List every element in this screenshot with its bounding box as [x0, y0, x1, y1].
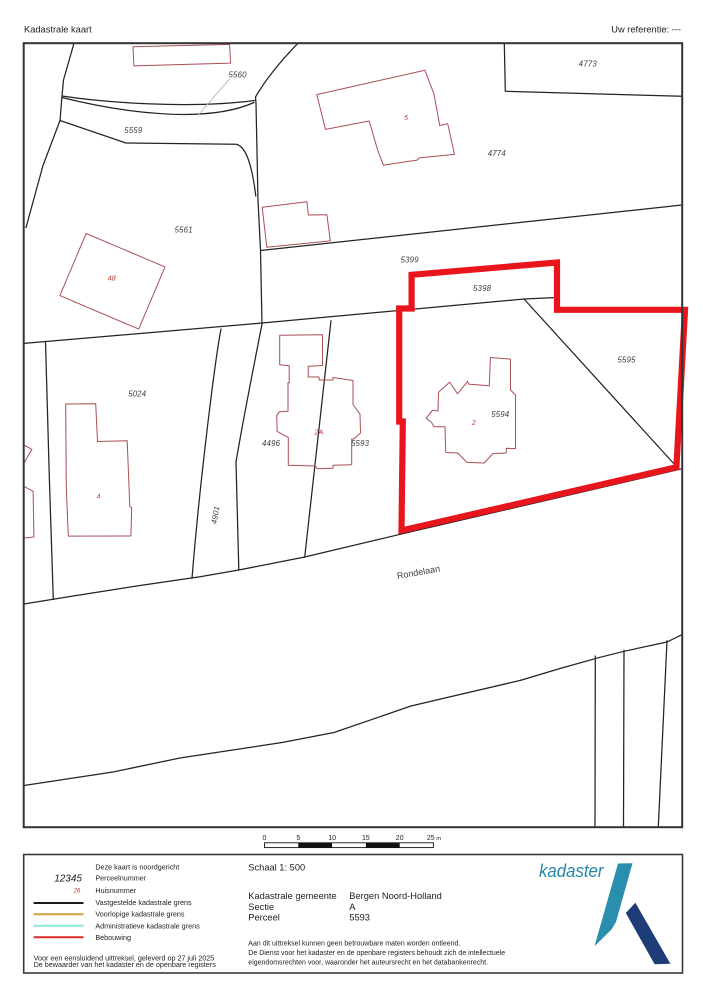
svg-text:Perceel: Perceel — [248, 913, 280, 923]
svg-text:Bergen Noord-Holland: Bergen Noord-Holland — [349, 891, 442, 901]
svg-text:Kadastrale gemeente: Kadastrale gemeente — [248, 891, 336, 901]
svg-text:4773: 4773 — [579, 60, 598, 69]
svg-text:2A: 2A — [314, 428, 324, 437]
svg-text:De Dienst voor het kadaster en: De Dienst voor het kadaster en de openba… — [248, 950, 505, 957]
svg-text:4: 4 — [97, 492, 101, 501]
svg-text:Kadastrale kaart: Kadastrale kaart — [24, 25, 92, 35]
svg-text:5: 5 — [296, 835, 300, 842]
svg-text:Vastgestelde kadastrale grens: Vastgestelde kadastrale grens — [95, 898, 192, 907]
svg-text:m: m — [436, 836, 441, 842]
svg-text:5559: 5559 — [124, 126, 143, 135]
svg-text:2: 2 — [471, 418, 476, 427]
svg-text:10: 10 — [328, 835, 336, 842]
svg-text:Deze kaart is noordgericht: Deze kaart is noordgericht — [95, 862, 179, 871]
svg-text:Perceelnummer: Perceelnummer — [95, 873, 146, 882]
svg-text:4774: 4774 — [488, 149, 507, 158]
svg-text:5593: 5593 — [349, 913, 370, 923]
svg-text:A: A — [349, 902, 356, 912]
svg-text:kadaster: kadaster — [539, 860, 604, 881]
svg-text:5024: 5024 — [128, 390, 147, 399]
svg-text:25: 25 — [427, 835, 435, 842]
svg-text:Schaal 1: 500: Schaal 1: 500 — [248, 862, 305, 872]
svg-text:eigendomsrechten voor, waarond: eigendomsrechten voor, waaronder het aut… — [248, 959, 488, 966]
svg-text:5594: 5594 — [491, 410, 510, 419]
svg-text:48: 48 — [108, 273, 116, 282]
svg-text:5399: 5399 — [401, 256, 420, 265]
svg-text:20: 20 — [396, 835, 404, 842]
svg-text:Aan dit uittreksel kunnen geen: Aan dit uittreksel kunnen geen betrouwba… — [248, 941, 460, 948]
svg-text:4496: 4496 — [262, 439, 281, 448]
svg-text:5398: 5398 — [473, 284, 492, 293]
svg-text:26: 26 — [73, 888, 81, 894]
svg-text:Uw referentie: ---: Uw referentie: --- — [611, 25, 681, 35]
svg-text:15: 15 — [362, 835, 370, 842]
svg-text:Sectie: Sectie — [248, 902, 274, 912]
svg-text:12345: 12345 — [54, 874, 82, 885]
svg-text:5561: 5561 — [175, 226, 193, 235]
svg-text:5595: 5595 — [618, 355, 637, 364]
svg-text:Huisnummer: Huisnummer — [95, 886, 136, 895]
svg-text:Administratieve kadastrale gre: Administratieve kadastrale grens — [95, 921, 200, 930]
svg-text:5593: 5593 — [351, 439, 370, 448]
svg-text:5560: 5560 — [229, 71, 248, 80]
svg-text:0: 0 — [263, 835, 267, 842]
svg-text:Voorlopige kadastrale grens: Voorlopige kadastrale grens — [95, 910, 185, 919]
svg-text:De bewaarder van het kadaster: De bewaarder van het kadaster en de open… — [34, 960, 217, 969]
svg-text:Bebouwing: Bebouwing — [95, 933, 131, 942]
